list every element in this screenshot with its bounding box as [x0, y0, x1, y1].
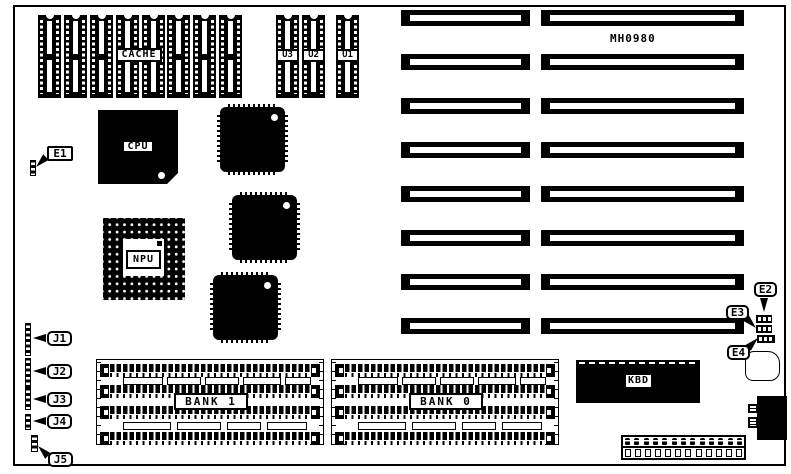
- callout-e1: E1: [47, 146, 73, 161]
- simm-latch: [335, 385, 344, 398]
- simm-outline: [358, 377, 398, 385]
- simm-outline: [285, 377, 311, 385]
- simm-outline: [462, 422, 496, 430]
- simm-outline: [123, 377, 163, 385]
- simm-outline: [205, 377, 239, 385]
- simm-outline: [177, 422, 221, 430]
- callout-tail: [33, 367, 46, 375]
- expansion-slot-segment: [541, 230, 744, 246]
- qfp-chip: [213, 275, 278, 340]
- socket-u2-label: U2: [302, 49, 325, 62]
- socket-u1-label: U1: [336, 49, 359, 62]
- expansion-slot-segment: [541, 186, 744, 202]
- expansion-slot-segment: [401, 10, 530, 26]
- simm-outline: [167, 377, 201, 385]
- connector-pin-row: [623, 437, 744, 446]
- qfp-pin1-dot: [264, 282, 271, 289]
- pin-header-j3: [25, 388, 31, 410]
- socket-u3-label: U3: [276, 49, 299, 62]
- npu-label: NPU: [126, 250, 161, 269]
- cache-socket: [38, 15, 61, 98]
- simm-outline: [402, 377, 436, 385]
- connector-socket-row: [623, 446, 744, 458]
- cache-socket: [167, 15, 190, 98]
- expansion-slot-segment: [401, 54, 530, 70]
- simm-outline: [440, 377, 474, 385]
- callout-j4: J4: [47, 414, 72, 429]
- callout-j1: J1: [47, 331, 72, 346]
- simm-outline: [123, 422, 171, 430]
- callout-tail: [33, 395, 46, 403]
- callout-e4: E4: [727, 345, 750, 360]
- simm-latch: [100, 432, 109, 445]
- simm-outline: [412, 422, 456, 430]
- cpu-pin1-dot: [158, 172, 165, 179]
- expansion-slot-segment: [401, 274, 530, 290]
- qfp-chip: [232, 195, 297, 260]
- simm-latch: [311, 364, 320, 377]
- expansion-slot-segment: [401, 186, 530, 202]
- simm-latch: [311, 406, 320, 419]
- simm-socket-row: [345, 364, 545, 377]
- connector-tab: [748, 417, 758, 428]
- cache-socket: [193, 15, 216, 98]
- simm-latch: [335, 364, 344, 377]
- expansion-slot-segment: [541, 98, 744, 114]
- pin-header-j4: [25, 414, 31, 430]
- cache-label: CACHE: [116, 48, 162, 62]
- bank-1-label: BANK 1: [174, 393, 248, 410]
- simm-latch: [335, 406, 344, 419]
- simm-outline: [520, 377, 546, 385]
- expansion-slot-segment: [541, 142, 744, 158]
- cpu-label: CPU: [122, 140, 154, 153]
- pin-header-j1: [25, 323, 31, 356]
- keyboard-connector: [757, 396, 787, 440]
- qfp-pin1-dot: [283, 202, 290, 209]
- pin-header-j2: [25, 358, 31, 389]
- simm-latch: [100, 385, 109, 398]
- simm-latch: [100, 364, 109, 377]
- callout-j3: J3: [47, 392, 72, 407]
- simm-latch: [311, 385, 320, 398]
- expansion-slot-segment: [401, 318, 530, 334]
- motherboard-diagram: CACHE U3 U2 U1 MH0980 CPU NP: [0, 0, 791, 474]
- expansion-slot-segment: [401, 142, 530, 158]
- simm-socket-row: [345, 432, 545, 445]
- callout-tail: [33, 334, 46, 342]
- expansion-slot-segment: [541, 54, 744, 70]
- component-outline: [745, 351, 780, 381]
- expansion-slot-segment: [401, 230, 530, 246]
- simm-outline: [227, 422, 261, 430]
- edge-connector: [621, 435, 746, 460]
- simm-outline: [358, 422, 406, 430]
- qfp-chip: [220, 107, 285, 172]
- simm-latch: [546, 385, 555, 398]
- callout-tail: [33, 417, 46, 425]
- bank-0-label: BANK 0: [409, 393, 483, 410]
- simm-outline: [478, 377, 516, 385]
- simm-latch: [546, 406, 555, 419]
- qfp-pin1-dot: [271, 114, 278, 121]
- jumper-e3: [756, 325, 772, 333]
- simm-outline: [502, 422, 542, 430]
- simm-latch: [100, 406, 109, 419]
- simm-latch: [546, 432, 555, 445]
- simm-socket-row: [110, 432, 310, 445]
- kbd-label: KBD: [624, 373, 653, 389]
- expansion-slot-segment: [541, 318, 744, 334]
- simm-outline: [267, 422, 307, 430]
- expansion-slot-segment: [401, 98, 530, 114]
- expansion-slot-segment: [541, 274, 744, 290]
- memory-bank-1: BANK 1: [96, 359, 324, 445]
- connector-tab: [748, 404, 758, 413]
- simm-latch: [335, 432, 344, 445]
- model-number: MH0980: [610, 32, 656, 45]
- callout-tail: [760, 298, 768, 312]
- callout-e2: E2: [754, 282, 777, 297]
- simm-socket-row: [110, 364, 310, 377]
- npu-pin1-dot: [157, 241, 162, 246]
- simm-latch: [546, 364, 555, 377]
- callout-j2: J2: [47, 364, 72, 379]
- callout-e3: E3: [726, 305, 749, 320]
- callout-j5: J5: [48, 452, 73, 467]
- simm-outline: [243, 377, 281, 385]
- cache-socket: [219, 15, 242, 98]
- cache-socket: [90, 15, 113, 98]
- memory-bank-0: BANK 0: [331, 359, 559, 445]
- cache-socket: [64, 15, 87, 98]
- jumper-e2: [756, 315, 772, 323]
- simm-latch: [311, 432, 320, 445]
- expansion-slot-segment: [541, 10, 744, 26]
